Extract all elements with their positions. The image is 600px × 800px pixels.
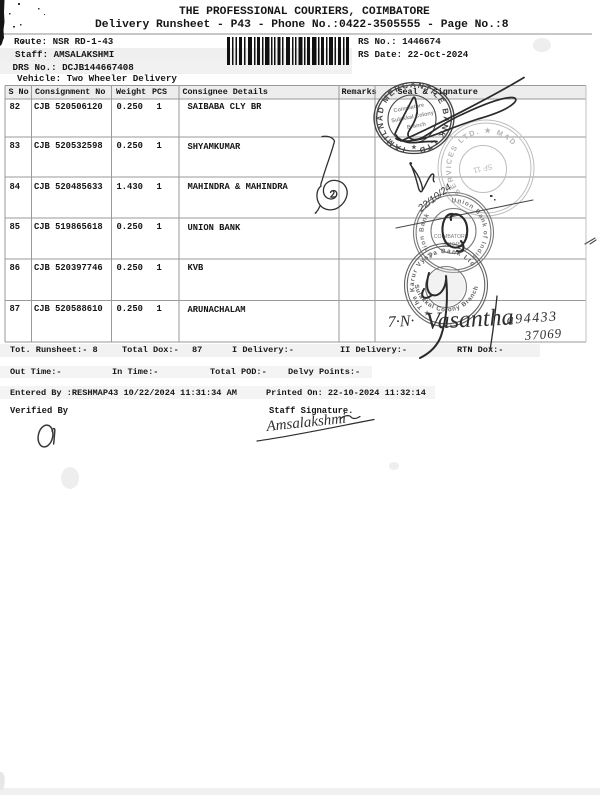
svg-text:Union Bank of India: Union Bank of India [451, 197, 488, 260]
svg-text:Coimbatore: Coimbatore [393, 102, 425, 114]
svg-text:★: ★ [411, 144, 417, 151]
svg-text:7·N·: 7·N· [387, 313, 415, 331]
svg-text:★ The Karur Vysya Bank Ltd: ★ The Karur Vysya Bank Ltd [409, 248, 477, 318]
svg-text:641045: 641045 [443, 242, 460, 248]
svg-text:a94433: a94433 [506, 309, 558, 328]
svg-text:22/10/24: 22/10/24 [415, 182, 454, 215]
svg-text:COIMBATORE: COIMBATORE [434, 234, 469, 240]
svg-text:Sulakkal Colony Branch: Sulakkal Colony Branch [413, 284, 481, 314]
svg-text:Branch: Branch [406, 121, 427, 131]
svg-text:Sulakkal Colony: Sulakkal Colony [391, 110, 435, 124]
svg-text:37069: 37069 [523, 325, 562, 343]
svg-text:Vasantha: Vasantha [425, 304, 514, 335]
svg-text:SF 11: SF 11 [472, 162, 493, 175]
svg-text:Union Bank: Union Bank [418, 211, 434, 258]
svg-text:SERVICES LTD. ★ MAD: SERVICES LTD. ★ MAD [444, 126, 519, 197]
